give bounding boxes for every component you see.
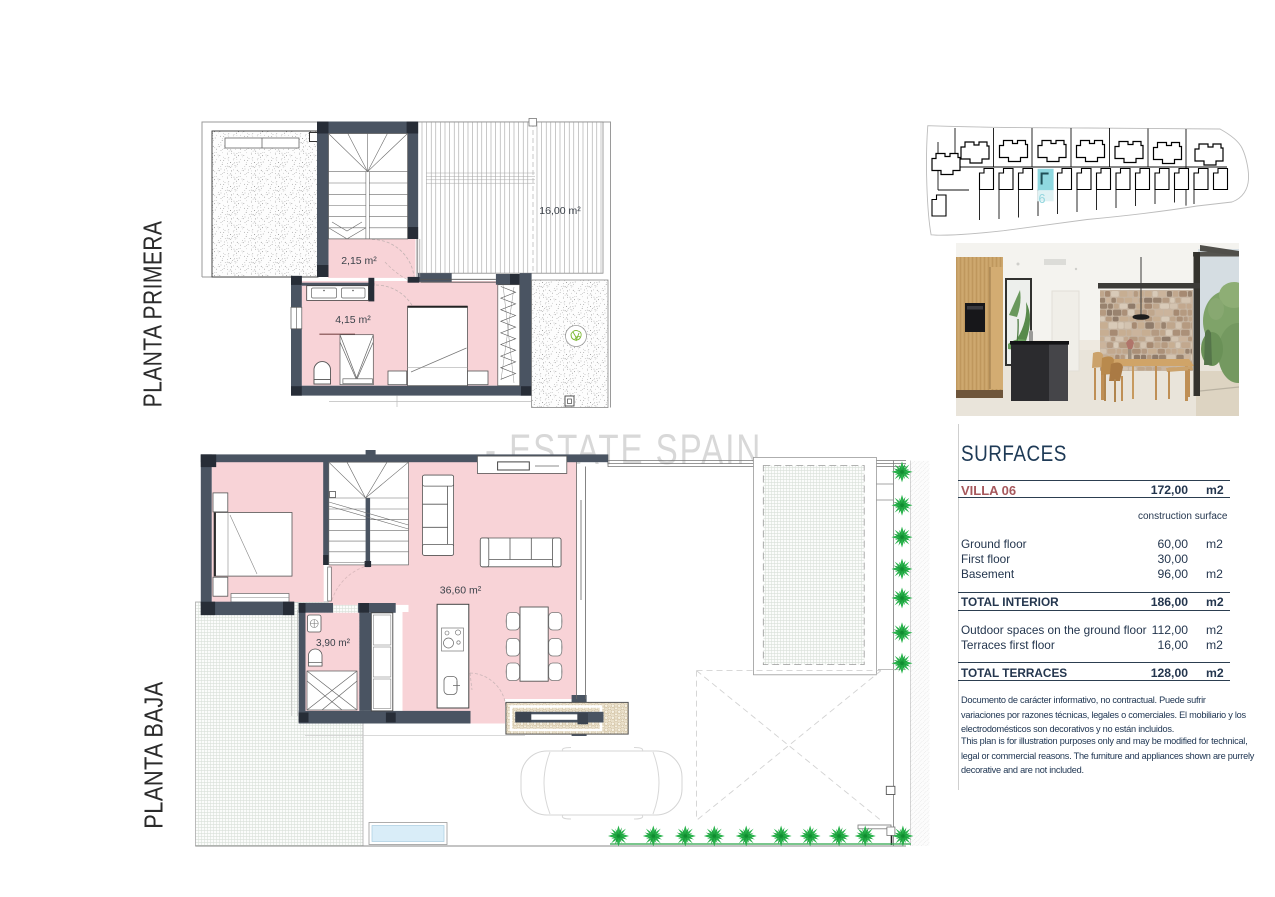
svg-text:2,15 m²: 2,15 m²	[341, 255, 377, 267]
svg-text:4,15 m²: 4,15 m²	[335, 314, 371, 326]
svg-text:36,60 m²: 36,60 m²	[440, 585, 482, 597]
svg-text:3,90 m²: 3,90 m²	[316, 638, 351, 649]
svg-text:6: 6	[1039, 192, 1046, 206]
svg-text:16,00 m²: 16,00 m²	[539, 205, 581, 217]
